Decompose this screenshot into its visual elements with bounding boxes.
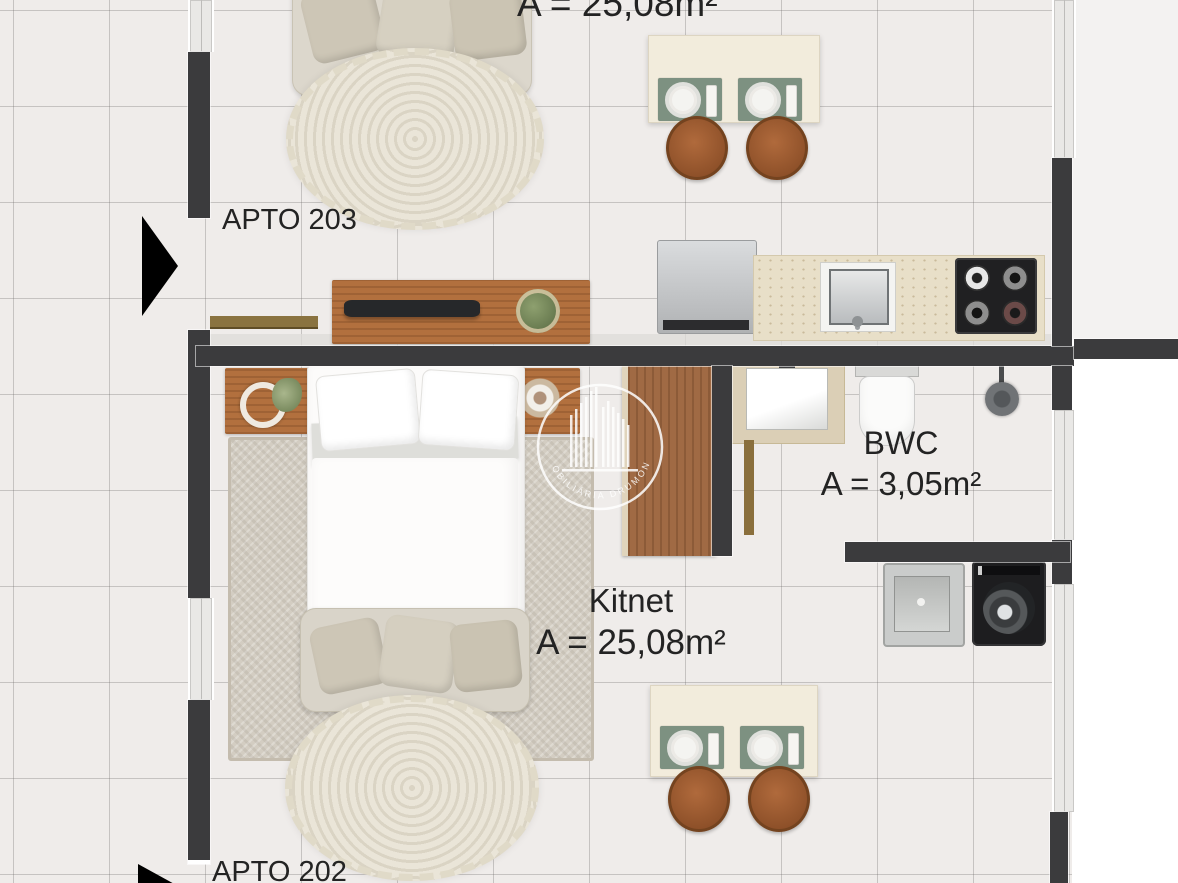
dining-chair	[746, 116, 808, 180]
wall-left-lower	[188, 700, 210, 864]
pillow	[417, 369, 519, 452]
dining-chair	[666, 116, 728, 180]
faucet-icon	[852, 316, 863, 327]
window-right-lower	[1052, 584, 1076, 812]
window-right-top	[1052, 0, 1076, 158]
watermark-circle	[538, 385, 662, 509]
floor-plan: A = 25,08m² APTO 203 Kitnet A = 25,08m² …	[0, 0, 1178, 883]
round-rug	[285, 695, 539, 881]
shower-head-icon	[985, 382, 1019, 416]
stove-burner	[964, 265, 990, 291]
exterior-area-top-right	[1072, 0, 1178, 340]
plant-icon	[516, 289, 560, 333]
dining-chair	[668, 766, 730, 832]
wall-right-upper	[1052, 158, 1072, 346]
bwc-door-leaf	[744, 440, 754, 535]
plate	[745, 82, 781, 118]
wall-bwc-bottom	[845, 542, 1070, 562]
window-left-top	[188, 0, 214, 52]
stove-burner	[1002, 300, 1028, 326]
wall-right-arm	[1074, 339, 1178, 359]
stove-burner	[964, 300, 990, 326]
upper-unit-area-label: A = 25,08m²	[517, 0, 718, 25]
unit-label-apto-203: APTO 203	[222, 204, 357, 237]
drain-icon	[917, 598, 925, 606]
entrance-door-leaf-upper	[210, 316, 318, 329]
plate	[665, 82, 701, 118]
wall-right-bottom	[1050, 812, 1068, 883]
watermark: IMOBILIÁRIA DRUMOND	[518, 363, 682, 535]
washer-drum-icon	[983, 582, 1035, 634]
pillow	[315, 368, 421, 452]
window-left-middle	[188, 598, 214, 700]
bwc-area-label: A = 3,05m²	[801, 464, 1001, 504]
window-bwc	[1052, 410, 1076, 540]
tv	[344, 300, 480, 317]
kitnet-area-label: A = 25,08m²	[499, 622, 763, 664]
bathroom-sink	[746, 368, 828, 430]
refrigerator-base	[663, 320, 749, 330]
napkin	[786, 85, 797, 117]
plate	[667, 730, 703, 766]
stove-burner	[1002, 265, 1028, 291]
wall-bwc-left	[712, 366, 732, 556]
stove	[955, 258, 1037, 334]
napkin	[708, 733, 719, 765]
exterior-area-bottom-right	[1072, 340, 1178, 883]
round-rug-upper	[286, 48, 544, 230]
napkin	[788, 733, 799, 765]
kitnet-name-label: Kitnet	[499, 581, 763, 621]
wall-left-upper	[188, 52, 210, 218]
unit-label-apto-202: APTO 202	[212, 856, 347, 883]
bench-cushion	[377, 613, 460, 695]
washer-panel	[978, 566, 1040, 575]
wall-right-bwc-a	[1052, 366, 1072, 410]
plate	[747, 730, 783, 766]
watermark-logo	[562, 387, 638, 472]
napkin	[706, 85, 717, 117]
dining-chair	[748, 766, 810, 832]
bwc-name-label: BWC	[801, 424, 1001, 462]
bench-cushion	[308, 615, 391, 696]
wall-left-middle	[188, 330, 210, 598]
